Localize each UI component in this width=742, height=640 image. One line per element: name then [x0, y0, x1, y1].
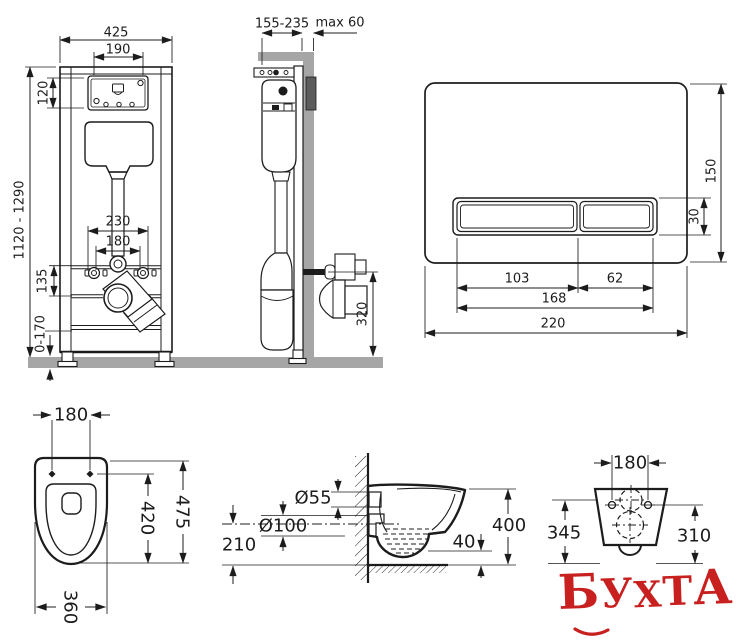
technical-drawing: 425 190 120 1120 - 1290 230 180 135 0-17… — [0, 0, 742, 640]
dim-rail-offset-label: 135 — [36, 269, 51, 294]
flush-pipe-side — [275, 181, 287, 253]
dim-buttons-total-label: 168 — [542, 292, 567, 307]
technical-drawing-sheet: 425 190 120 1120 - 1290 230 180 135 0-17… — [0, 0, 742, 640]
watermark-letter: У — [599, 573, 634, 614]
trap-cylinder — [261, 290, 293, 350]
dim-top-holes-label: 180 — [54, 405, 88, 426]
wall-bracket — [306, 77, 316, 110]
dim-outlet-height-label: 320 — [356, 302, 371, 327]
dim-window-width-label: 190 — [106, 43, 131, 58]
floor-strip — [28, 357, 383, 368]
dim-button-small-label: 62 — [607, 272, 624, 287]
threaded-rod — [303, 269, 326, 275]
dim-rear-holes-label: 180 — [613, 453, 647, 474]
watermark-letter: Б — [557, 568, 601, 617]
dim-rear-right-label: 310 — [677, 526, 711, 547]
dim-frame-width-label: 425 — [104, 26, 129, 41]
trap-bend — [261, 253, 292, 290]
dim-button-height-label: 30 — [688, 208, 703, 225]
cistern-side — [262, 80, 296, 172]
dim-bowl-height-label: 400 — [492, 515, 526, 536]
flush-plate-view — [425, 83, 727, 338]
rod-fitting — [335, 254, 355, 280]
drain-connector-bell — [320, 280, 346, 318]
dim-bowl-width-label: 360 — [60, 590, 81, 624]
dim-fixing-inner-label: 180 — [106, 235, 131, 250]
dim-fixing-outer-label: 230 — [106, 215, 131, 230]
dim-seat-length-label: 420 — [137, 501, 158, 535]
floor-hatching — [368, 566, 446, 573]
dim-plate-width-label: 220 — [541, 317, 566, 332]
frame-foot-left — [62, 352, 73, 362]
dim-outlet-axis-label: 210 — [222, 535, 256, 556]
dim-window-height-label: 120 — [37, 81, 52, 106]
dim-frame-height-label: 1120 - 1290 — [13, 180, 28, 259]
dim-button-large-label: 103 — [505, 272, 530, 287]
flush-elbow — [110, 256, 126, 272]
dim-plate-height-label: 150 — [705, 159, 720, 184]
dim-depth-range-label: 155-235 — [255, 17, 309, 32]
frame-foot-right — [159, 352, 170, 362]
watermark-letter: Т — [662, 571, 694, 612]
wall-hatching — [355, 456, 368, 580]
bowl-top-view — [33, 415, 189, 614]
flush-plate — [425, 83, 687, 263]
dim-bowl-length-label: 475 — [172, 495, 193, 529]
cistern-front — [85, 122, 153, 172]
dim-outlet-diameter-label: Ø100 — [259, 516, 308, 537]
dim-max-finish-label: max 60 — [316, 16, 365, 31]
dim-rim-gap-label: 40 — [453, 532, 476, 553]
frame-foot-side — [293, 350, 303, 359]
dim-leg-adjust-label: 0-170 — [34, 315, 49, 353]
dim-rear-left-label: 345 — [547, 523, 581, 544]
dim-inlet-diameter-label: Ø55 — [294, 488, 331, 509]
rear-bump — [619, 545, 641, 555]
valve-knob — [279, 87, 288, 96]
watermark-letter: А — [692, 563, 734, 612]
bowl-outline-side — [368, 485, 465, 557]
watermark: Б У Х Т А — [549, 563, 742, 640]
watermark-letter: Х — [633, 576, 663, 613]
